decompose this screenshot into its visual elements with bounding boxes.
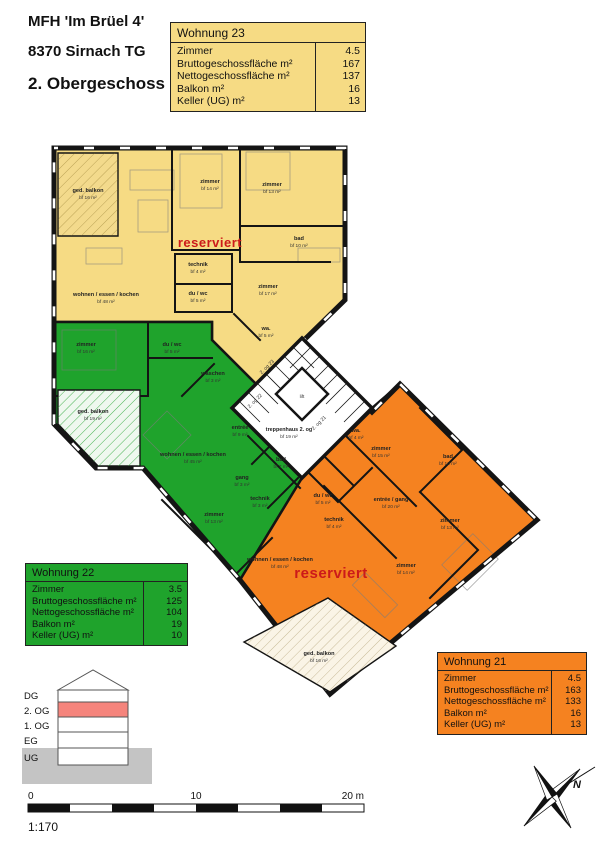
floor-label-dg: DG xyxy=(24,691,38,702)
row-value: 163 xyxy=(554,685,581,697)
room-area: bf 4 m² xyxy=(349,435,364,441)
room-label: bad xyxy=(276,457,287,463)
room-label: du / wc xyxy=(314,493,333,499)
row-label: Bruttogeschossfläche m² xyxy=(32,596,141,608)
room-area: bf 48 m² xyxy=(271,564,289,570)
reserved-stamp-w23: reserviert xyxy=(178,235,242,250)
row-value: 4.5 xyxy=(554,673,581,685)
compass-star xyxy=(524,766,580,828)
row-label: Zimmer xyxy=(32,584,141,596)
room-label: du / wc xyxy=(163,342,182,348)
floor-dg xyxy=(58,690,128,702)
scale-bar: 0 10 20 m xyxy=(26,788,371,820)
room-label: waschen xyxy=(200,371,225,377)
room-label: ged. balkon xyxy=(72,188,104,194)
room-area: bf 15 m² xyxy=(372,453,390,459)
room-area: bf 19 m² xyxy=(84,416,102,422)
room-area: bf 14 m² xyxy=(397,570,415,576)
room-area: bf 7 m² xyxy=(274,464,289,470)
room-area: bf 5 m² xyxy=(191,298,206,304)
section-diagram: DG 2. OG 1. OG EG UG xyxy=(18,666,168,791)
room-area: bf 14 m² xyxy=(201,186,219,192)
room-area: bf 13 m² xyxy=(263,189,281,195)
room-label: wohnen / essen / kochen xyxy=(159,452,226,458)
room-area: bf 13 m² xyxy=(441,525,459,531)
roof xyxy=(58,670,128,690)
room-label: zimmer xyxy=(396,563,416,569)
room-label: gang xyxy=(235,475,249,481)
room-area: bf 13 m² xyxy=(205,519,223,525)
floor-label-eg: EG xyxy=(24,736,38,747)
table-labels: Zimmer Bruttogeschossfläche m² Nettogesc… xyxy=(438,671,551,734)
row-label: Keller (UG) m² xyxy=(444,719,549,731)
room-area: bf 20 m² xyxy=(382,504,400,510)
row-value: 104 xyxy=(146,607,182,619)
row-value: 133 xyxy=(554,696,581,708)
floor-1og xyxy=(58,717,128,732)
room-label: ged. balkon xyxy=(77,409,109,415)
row-label: Balkon m² xyxy=(32,619,141,631)
scale-tick-20: 20 m xyxy=(342,791,364,802)
room-label: bad xyxy=(294,236,305,242)
room-area: bf 10 m² xyxy=(290,243,308,249)
table-title: Wohnung 21 xyxy=(438,653,586,671)
room-label: zimmer xyxy=(204,512,224,518)
table-wohnung-21: Wohnung 21 Zimmer Bruttogeschossfläche m… xyxy=(437,652,587,735)
row-label: Nettogeschossfläche m² xyxy=(444,696,549,708)
room-area: bf 16 m² xyxy=(79,195,97,201)
room-label: wohnen / essen / kochen xyxy=(246,557,313,563)
floor-ug xyxy=(58,748,128,765)
row-value: 16 xyxy=(554,708,581,720)
row-label: Nettogeschossfläche m² xyxy=(32,607,141,619)
room-area: bf 48 m² xyxy=(97,299,115,305)
row-value: 13 xyxy=(554,719,581,731)
room-area: bf 3 m² xyxy=(235,482,250,488)
room-area: bf 9 m² xyxy=(233,432,248,438)
scale-tick-0: 0 xyxy=(28,791,34,802)
room-label: ged. balkon xyxy=(303,651,335,657)
lift-label: lift xyxy=(300,394,305,400)
room-area: bf 4 m² xyxy=(327,524,342,530)
room-area: bf 16 m² xyxy=(77,349,95,355)
reserved-stamp-w21: reserviert xyxy=(294,565,367,582)
table-values: 3.5 125 104 19 10 xyxy=(143,582,187,645)
room-label: zimmer xyxy=(200,179,220,185)
floor-2og-highlight xyxy=(58,702,128,717)
table-labels: Zimmer Bruttogeschossfläche m² Nettogesc… xyxy=(26,582,143,645)
scale-segments xyxy=(28,804,364,812)
room-area: bf 5 m² xyxy=(259,333,274,339)
scale-ratio: 1:170 xyxy=(28,820,58,834)
north-label: N xyxy=(573,779,582,791)
room-area: bf 45 m² xyxy=(184,459,202,465)
room-label: technik xyxy=(188,262,208,268)
room-label: zimmer xyxy=(76,342,96,348)
room-area: bf 4 m² xyxy=(191,269,206,275)
room-label: du / wc xyxy=(189,291,208,297)
room-area: bf 17 m² xyxy=(259,291,277,297)
room-label: zimmer xyxy=(440,518,460,524)
table-wohnung-22: Wohnung 22 Zimmer Bruttogeschossfläche m… xyxy=(25,563,188,646)
stairs-area: bf 19 m² xyxy=(280,434,298,440)
room-label: bad xyxy=(443,454,454,460)
row-label: Keller (UG) m² xyxy=(32,630,141,642)
room-area: bf 16 m² xyxy=(310,658,328,664)
room-label: zimmer xyxy=(262,182,282,188)
room-label: technik xyxy=(324,517,344,523)
row-label: Balkon m² xyxy=(444,708,549,720)
floor-eg xyxy=(58,732,128,748)
floor-label-ug: UG xyxy=(24,753,38,764)
room-label: zimmer xyxy=(371,446,391,452)
table-title: Wohnung 22 xyxy=(26,564,187,582)
room-area: bf 3 m² xyxy=(206,378,221,384)
stairs-label: treppenhaus 2. og xyxy=(266,427,312,433)
row-value: 19 xyxy=(146,619,182,631)
floor-label-1og: 1. OG xyxy=(24,721,49,732)
row-label: Zimmer xyxy=(444,673,549,685)
room-area: bf 10 m² xyxy=(439,461,457,467)
row-label: Bruttogeschossfläche m² xyxy=(444,685,549,697)
row-value: 125 xyxy=(146,596,182,608)
room-label: technik xyxy=(250,496,270,502)
room-label: wa. xyxy=(350,428,360,434)
room-label: wa. xyxy=(260,326,270,332)
scale-tick-10: 10 xyxy=(190,791,202,802)
room-label: entrée / gang xyxy=(374,497,409,503)
room-label: wohnen / essen / kochen xyxy=(72,292,139,298)
floor-label-2og: 2. OG xyxy=(24,706,49,717)
room-label: zimmer xyxy=(258,284,278,290)
room-area: bf 5 m² xyxy=(316,500,331,506)
row-value: 10 xyxy=(146,630,182,642)
north-arrow: N xyxy=(505,745,600,840)
room-area: bf 3 m² xyxy=(253,503,268,509)
row-value: 3.5 xyxy=(146,584,182,596)
table-values: 4.5 163 133 16 13 xyxy=(551,671,586,734)
room-label: entrée xyxy=(232,425,249,431)
room-area: bf 5 m² xyxy=(165,349,180,355)
